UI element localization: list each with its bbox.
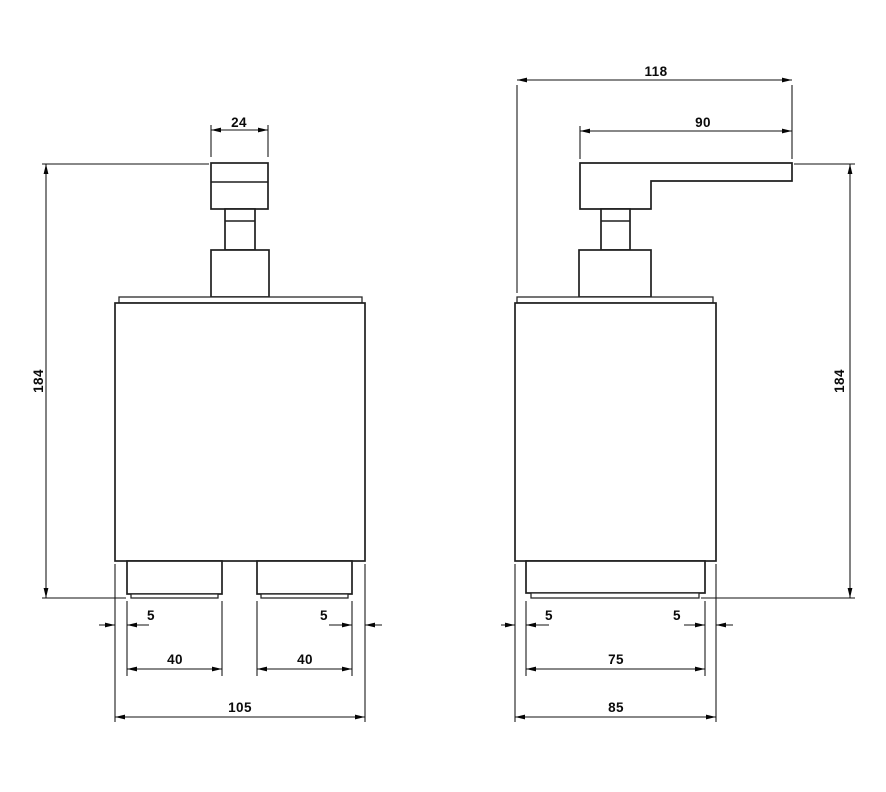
front-foot-left: [127, 561, 222, 594]
side-body: [515, 303, 716, 561]
front-dim-label-inset-right: 5: [320, 608, 328, 623]
side-dim-label-inset-left: 5: [545, 608, 553, 623]
front-view: [115, 163, 365, 598]
side-pump-lever: [580, 163, 792, 209]
front-dim-label-foot-left: 40: [167, 652, 183, 667]
drawing-canvas: 24 184 5 5 40 40 105: [0, 0, 886, 792]
side-view: [515, 163, 792, 598]
front-dim-label-overall-width: 105: [228, 700, 252, 715]
front-foot-right-pad: [261, 594, 348, 598]
side-foot: [526, 561, 705, 593]
side-dim-label-body-depth: 85: [608, 700, 624, 715]
front-foot-right: [257, 561, 352, 594]
front-pump-cap: [211, 163, 268, 209]
side-dim-label-foot-depth: 75: [608, 652, 624, 667]
front-dim-label-foot-right: 40: [297, 652, 313, 667]
front-dim-label-inset-left: 5: [147, 608, 155, 623]
side-pump-neck: [601, 209, 630, 250]
technical-drawing-sheet: 24 184 5 5 40 40 105: [0, 0, 886, 792]
front-dim-label-cap-width: 24: [231, 115, 247, 130]
side-dim-label-spout-reach: 90: [695, 115, 711, 130]
front-pump-neck: [225, 209, 255, 250]
front-lid: [119, 297, 362, 303]
front-pump-base: [211, 250, 269, 297]
side-foot-pad: [531, 593, 699, 598]
side-dim-label-overall-depth: 118: [645, 64, 668, 79]
side-dim-label-inset-right: 5: [673, 608, 681, 623]
front-dim-label-height: 184: [31, 369, 46, 393]
front-body: [115, 303, 365, 561]
front-foot-left-pad: [131, 594, 218, 598]
side-pump-base: [579, 250, 651, 297]
side-dim-label-height: 184: [832, 369, 847, 393]
side-lid: [517, 297, 713, 303]
